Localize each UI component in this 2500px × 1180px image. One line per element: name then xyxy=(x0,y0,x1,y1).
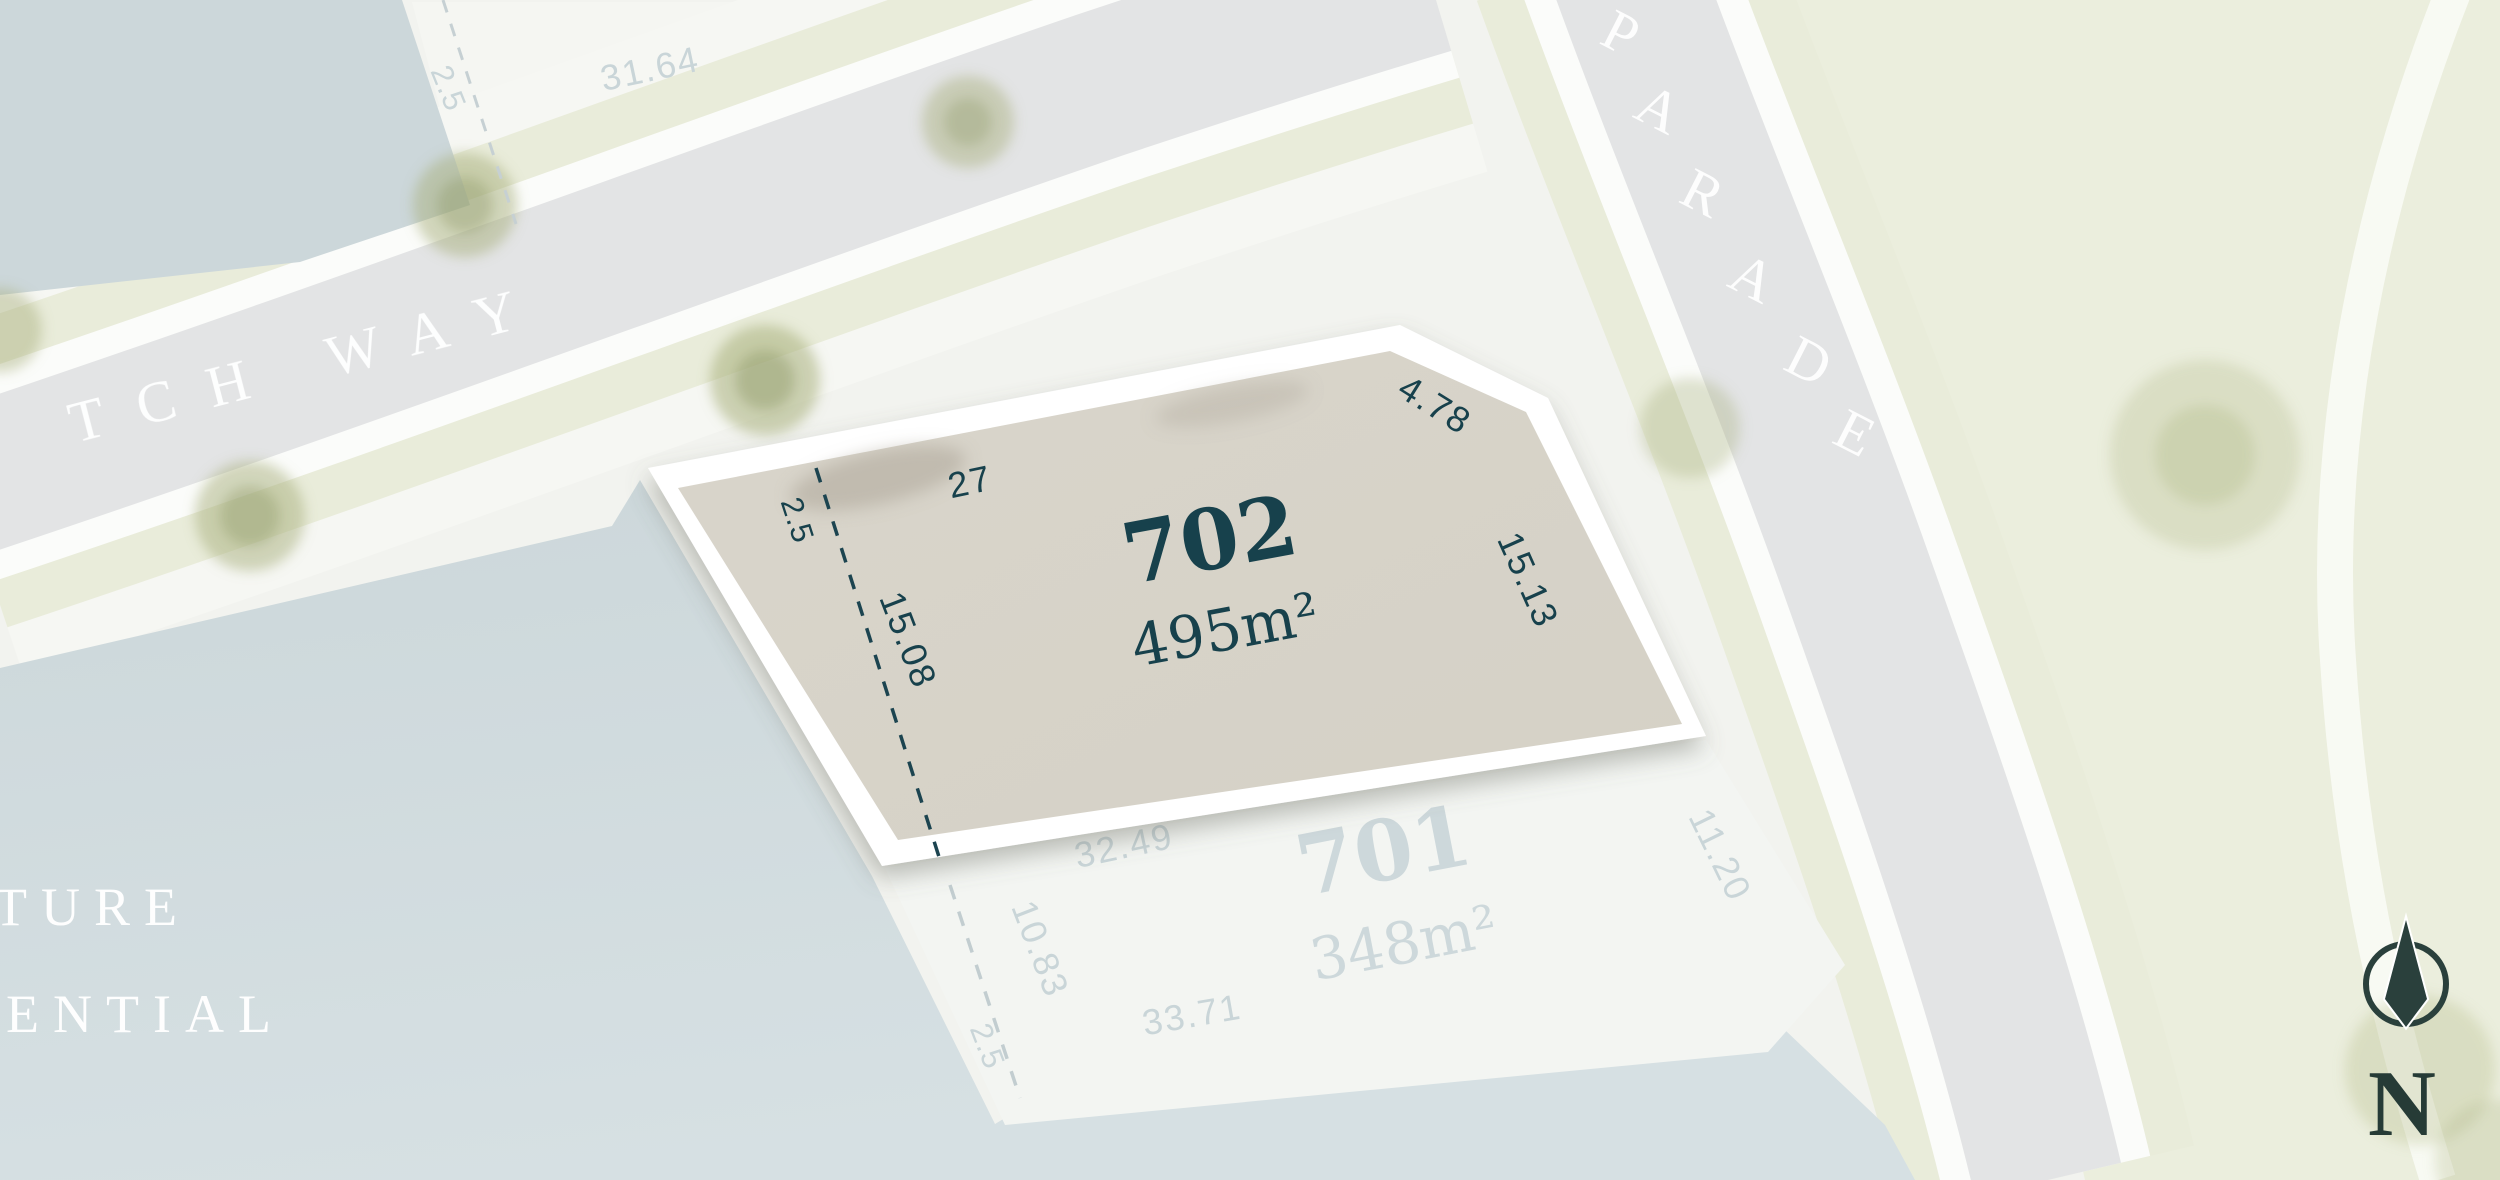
tree-icon xyxy=(2110,360,2300,550)
estate-map: 701 348m² 32.49 10.83 33.71 11.20 2.5 70… xyxy=(0,0,2500,1180)
future-area-line1: TURE xyxy=(0,877,191,937)
tree-icon xyxy=(195,461,305,571)
tree-icon xyxy=(1640,378,1740,478)
tree-icon xyxy=(710,325,820,435)
tree-icon xyxy=(413,153,517,257)
tree-icon xyxy=(922,76,1014,168)
future-area-line2: ENTIAL xyxy=(6,984,285,1044)
compass-north-label: N xyxy=(2368,1052,2436,1156)
